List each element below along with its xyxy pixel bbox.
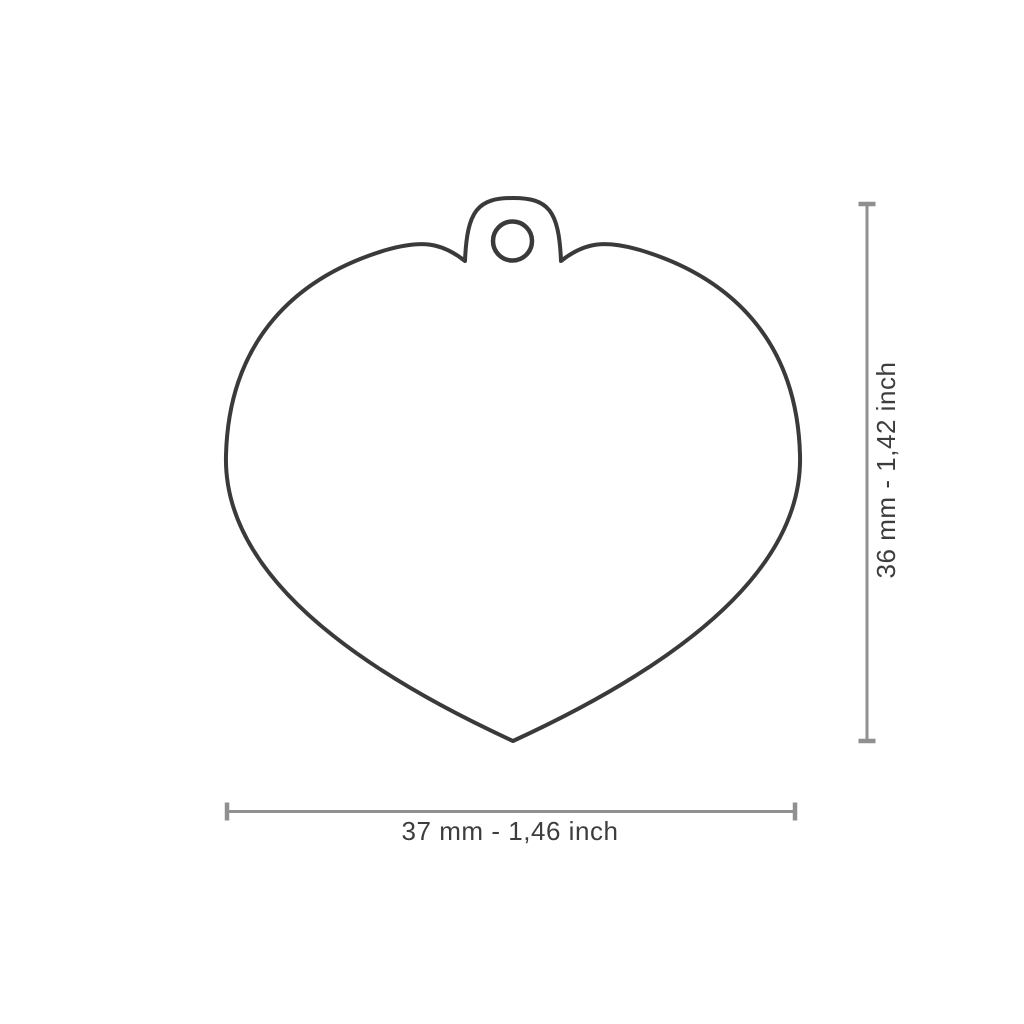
page-canvas: 36 mm - 1,42 inch 37 mm - 1,46 inch <box>0 0 1024 1024</box>
heart-tag-dimension-diagram: 36 mm - 1,42 inch 37 mm - 1,46 inch <box>0 0 1024 1024</box>
hanger-hole <box>493 222 532 261</box>
height-dimension: 36 mm - 1,42 inch <box>859 204 902 741</box>
width-dimension-label: 37 mm - 1,46 inch <box>402 816 619 846</box>
width-dimension: 37 mm - 1,46 inch <box>227 803 795 847</box>
heart-tag-outline <box>226 198 800 741</box>
height-dimension-label: 36 mm - 1,42 inch <box>871 362 901 579</box>
